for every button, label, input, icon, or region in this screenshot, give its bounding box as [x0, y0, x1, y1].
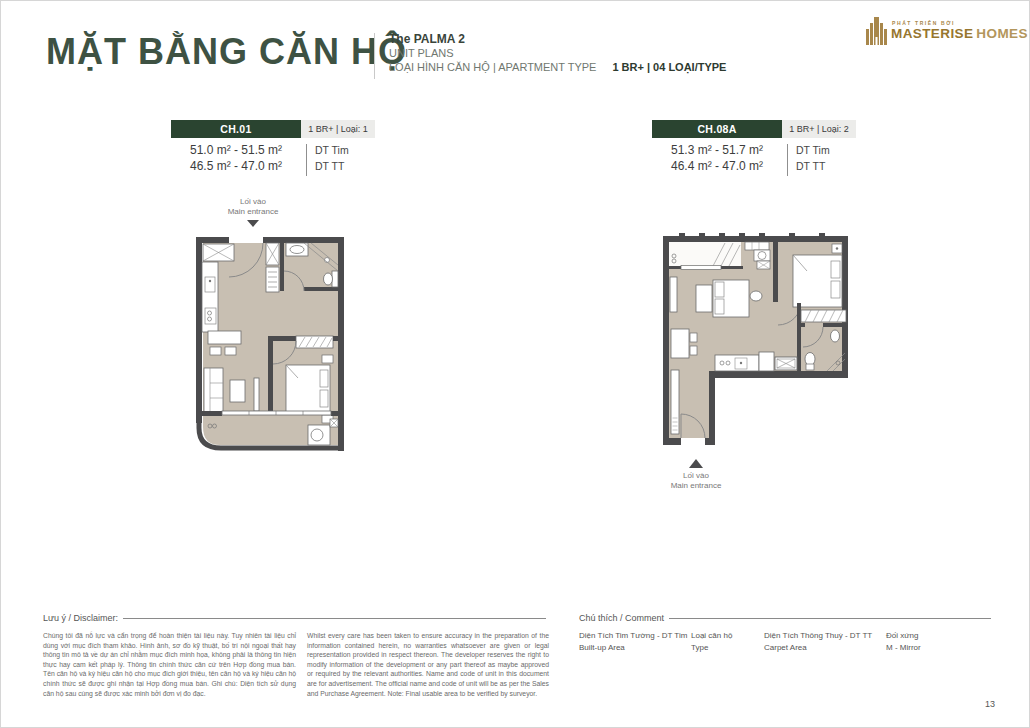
legend-carpet-line2: Carpet Area	[764, 642, 872, 654]
unit-type-tag-ch08a: 1 BR+ | Loại: 2	[782, 120, 856, 138]
legend-item-type: Loại căn hộ Type	[691, 630, 732, 654]
carpet-label-ch01: DT TT	[315, 160, 344, 172]
unit-type-tag-ch01: 1 BR+ | Loại: 1	[301, 120, 375, 138]
legend-rule	[669, 618, 991, 619]
legend-builtup-line2: Built-up Area	[579, 642, 687, 654]
builtup-area-ch01: 51.0 m² - 51.5 m²	[171, 143, 301, 157]
logo-brand-word1: MASTERISE	[891, 26, 973, 41]
builtup-area-ch08a: 51.3 m² - 51.7 m²	[652, 143, 782, 157]
area-divider-ch08a	[787, 144, 788, 176]
carpet-area-ch01: 46.5 m² - 47.0 m²	[171, 159, 301, 173]
carpet-area-ch08a: 46.4 m² - 47.0 m²	[652, 159, 782, 173]
entrance-vi-ch08a: Lối vào	[636, 471, 756, 481]
header-divider	[374, 33, 375, 79]
floorplan-ch08a	[655, 233, 851, 463]
legend-type-line2: Type	[691, 642, 732, 654]
legend-item-mirror: Đối xứng M - Mirror	[886, 630, 921, 654]
logo-brand-word2: HOMES	[976, 26, 1028, 41]
apartment-type-label: LOẠI HÌNH CĂN HỘ | APARTMENT TYPE	[389, 61, 596, 73]
page-title: MẶT BẰNG CĂN HỘ	[46, 31, 407, 73]
project-name: The PALMA 2	[389, 32, 726, 46]
entrance-label-ch01: Lối vào Main entrance	[193, 197, 313, 227]
entrance-label-ch08a: Lối vào Main entrance	[636, 459, 756, 491]
header-info: The PALMA 2 UNIT PLANS LOẠI HÌNH CĂN HỘ …	[389, 32, 726, 74]
entrance-vi-ch01: Lối vào	[193, 197, 313, 207]
disclaimer-label: Lưu ý / Disclaimer:	[43, 613, 118, 623]
entrance-arrow-down-icon	[247, 220, 259, 227]
legend-type-line1: Loại căn hộ	[691, 630, 732, 642]
legend-mirror-line1: Đối xứng	[886, 630, 921, 642]
unit-code-badge-ch01: CH.01	[171, 120, 301, 138]
disclaimer-rule	[123, 618, 546, 619]
entrance-arrow-up-icon	[689, 459, 703, 468]
logo-brand: MASTERISEHOMES	[891, 26, 1028, 41]
carpet-label-ch08a: DT TT	[796, 160, 825, 172]
builtup-label-ch01: DT Tim	[315, 144, 349, 156]
masterise-logo-icon	[866, 17, 887, 49]
entrance-en-ch08a: Main entrance	[636, 481, 756, 491]
legend-item-builtup: Diện Tích Tim Tường - DT Tim Built-up Ar…	[579, 630, 687, 654]
project-subtitle: UNIT PLANS	[389, 46, 726, 60]
legend-item-carpet: Diện Tích Thông Thuỷ - DT TT Carpet Area	[764, 630, 872, 654]
floorplan-ch01	[196, 229, 346, 465]
brochure-page: MẶT BẰNG CĂN HỘ The PALMA 2 UNIT PLANS L…	[0, 0, 1030, 728]
disclaimer-text-vi: Chúng tôi đã nỗ lực và cẩn trọng để hoàn…	[43, 631, 296, 698]
builtup-label-ch08a: DT Tim	[796, 144, 830, 156]
legend-builtup-line1: Diện Tích Tim Tường - DT Tim	[579, 630, 687, 642]
area-divider-ch01	[306, 144, 307, 176]
page-number: 13	[985, 699, 995, 709]
disclaimer-text-en: Whilst every care has been taken to ensu…	[307, 631, 549, 698]
unit-code-badge-ch08a: CH.08A	[652, 120, 782, 138]
legend-carpet-line1: Diện Tích Thông Thuỷ - DT TT	[764, 630, 872, 642]
legend-label: Chú thích / Comment	[579, 613, 664, 623]
legend-mirror-line2: M - Mirror	[886, 642, 921, 654]
entrance-en-ch01: Main entrance	[193, 207, 313, 217]
apartment-type-value: 1 BR+ | 04 LOẠI/TYPE	[612, 61, 726, 73]
